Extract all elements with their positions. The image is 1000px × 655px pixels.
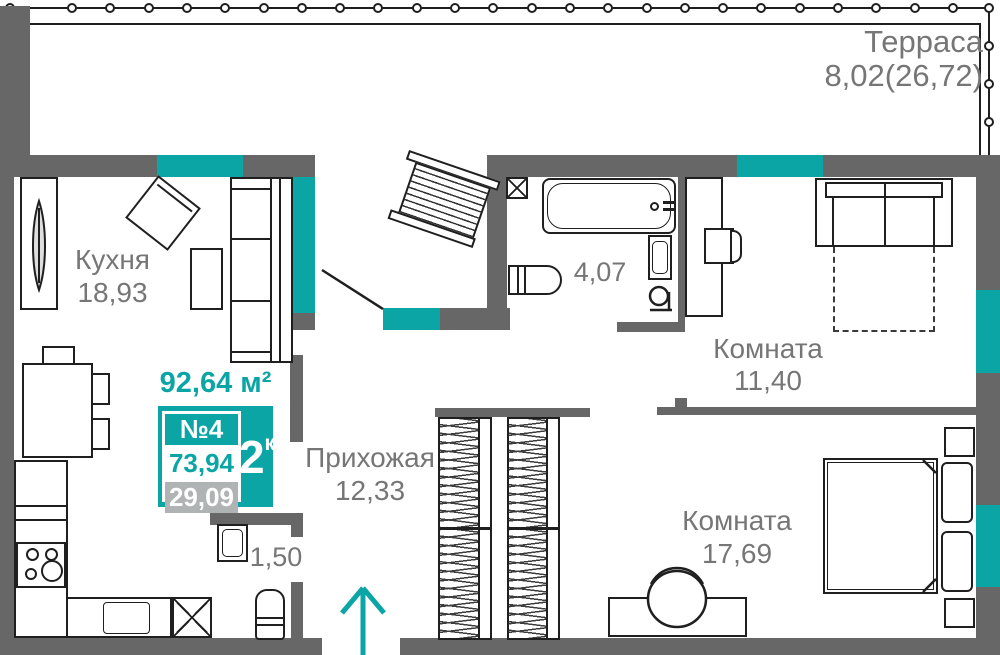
wardrobe-2 [507, 417, 560, 640]
railing-post [603, 3, 613, 13]
wall-wc-right-upper [291, 513, 303, 537]
unit-rooms-count: 2к [241, 406, 273, 507]
counter-divider-1 [16, 505, 66, 507]
railing-post [67, 3, 77, 13]
bathtub-faucet-2 [663, 208, 676, 211]
unit-card-left: №4 73,94 29,09 [162, 411, 241, 502]
bed-pillow-1 [941, 462, 973, 523]
railing-post [488, 3, 498, 13]
railing-post [565, 3, 575, 13]
entrance-arrow [342, 588, 384, 655]
total-area: 92,64 м² [150, 367, 281, 400]
kitchen-door-block [383, 308, 440, 330]
room-top-area: 11,40 [698, 366, 838, 395]
dining-table [22, 363, 93, 458]
railing-post [680, 3, 690, 13]
nightstand-1 [944, 427, 975, 457]
dining-chair-right-2 [91, 418, 110, 450]
sofa-bed-line-center [884, 184, 886, 245]
wall-bottom-left [0, 638, 322, 655]
wardrobe-1 [438, 417, 492, 640]
vent-shaft-bath [506, 177, 528, 199]
room-bottom-name: Комната [662, 506, 812, 535]
bathtub-faucet-1 [663, 201, 676, 204]
room-top-name: Комната [698, 334, 838, 363]
wc-toilet-line-2 [257, 624, 283, 626]
window-room-top [737, 155, 823, 177]
sofa-back-line-1 [270, 179, 272, 361]
unit-card: №4 73,94 29,09 2к [158, 406, 273, 507]
railing-post [412, 3, 422, 13]
coffee-table [190, 248, 223, 310]
wall-terrace-kitchen-a [14, 155, 157, 177]
sofa-bed-unfolded [833, 247, 935, 332]
kitchen-area: 18,93 [40, 278, 185, 307]
kitchen-name: Кухня [40, 245, 185, 274]
railing-post [373, 3, 383, 13]
railing-post [718, 3, 728, 13]
burner-3 [25, 568, 37, 580]
washer-line-1 [517, 267, 519, 293]
wc-toilet-line-1 [257, 617, 283, 619]
vent-shaft-kitchen [172, 597, 212, 638]
wc-area: 1,50 [240, 543, 312, 571]
counter-divider-2 [16, 519, 66, 521]
railing-post [527, 3, 537, 13]
wall-terrace-right-a [487, 155, 737, 177]
hallway-area: 12,33 [296, 476, 444, 505]
railing-post [948, 3, 958, 13]
washing-machine [508, 265, 562, 295]
railing-post [335, 3, 345, 13]
sofa-bed-line-left [832, 198, 834, 245]
railing-post [795, 3, 805, 13]
bath-sink-bowl [652, 241, 668, 274]
wall-right-a [976, 177, 1000, 290]
hallway-name: Прихожая [296, 443, 444, 472]
unit-area-secondary: 29,09 [165, 482, 238, 513]
unit-rooms-value: 2 [239, 434, 265, 480]
wc-toilet [255, 589, 285, 640]
railing-post [259, 3, 269, 13]
sofa-seat-line-1 [232, 238, 270, 240]
bed-inner [827, 462, 934, 590]
wardrobe-2-divider-h [509, 527, 558, 530]
nightstand-2 [944, 598, 975, 628]
wall-kitchen-hall [290, 355, 303, 442]
wall-bottom-right [400, 638, 1000, 655]
desk-room-bottom [608, 597, 747, 637]
railing-line-top-inner [30, 23, 981, 25]
bath-toilet-icon [650, 287, 672, 310]
wall-wardrobe-top [435, 408, 590, 417]
wall-bath-right [678, 175, 685, 332]
kitchen-door-swing [322, 270, 383, 309]
desk-chair-back [730, 230, 742, 263]
wall-rooms-divider [657, 407, 1000, 415]
sofa-armrest-bottom [232, 351, 270, 353]
wall-left-upper [0, 6, 30, 177]
wall-terrace-right-b [823, 155, 1000, 177]
railing-line-top-outer [30, 7, 989, 9]
wall-kitchen-partition-foot [293, 313, 315, 330]
bathtub-drain [650, 202, 659, 211]
wall-bath-bottom [617, 322, 685, 332]
wall-rooms-divider-stub [675, 398, 687, 409]
sofa-back-line-2 [279, 179, 281, 361]
terrace-area: 8,02(26,72) [700, 60, 983, 93]
armchair [125, 175, 201, 251]
wall-terrace-kitchen-b [243, 155, 315, 177]
burner-4 [41, 560, 63, 582]
wardrobe-1-divider-h [440, 527, 490, 530]
floor-plan: Терраса 8,02(26,72) Кухня 18,93 4,07 Ком… [0, 0, 1000, 655]
railing-post [984, 3, 994, 13]
washer-line-2 [524, 267, 526, 293]
railing-post [105, 3, 115, 13]
railing-post [756, 3, 766, 13]
railing-post [144, 3, 154, 13]
room-bottom-area: 17,69 [662, 539, 812, 568]
window-right-room-top [976, 290, 1000, 373]
railing-post [910, 3, 920, 13]
railing-post [871, 3, 881, 13]
sofa-armrest-top [232, 188, 270, 190]
sofa-seat-line-2 [232, 300, 270, 302]
unit-rooms-sup: к [265, 432, 276, 456]
railing-post [642, 3, 652, 13]
burner-1 [26, 548, 39, 561]
wall-left-lower [0, 175, 14, 655]
terrace-name: Терраса [700, 26, 983, 59]
railing-post [984, 79, 994, 89]
railing-post [984, 41, 994, 51]
wall-wc-right-lower [291, 582, 303, 640]
railing-post [450, 3, 460, 13]
window-right-room-bottom [976, 505, 1000, 587]
unit-number: №4 [165, 414, 238, 445]
railing-post [220, 3, 230, 13]
kitchen-sink [103, 602, 150, 634]
railing-post [984, 117, 994, 127]
unit-area-main: 73,94 [165, 448, 238, 479]
sofa-bed-line-right [933, 198, 935, 245]
window-kitchen [157, 155, 243, 177]
glass-partition-kitchen [293, 177, 315, 313]
sun-lounger [382, 148, 505, 262]
wall-right-b [976, 373, 1000, 505]
railing-post [833, 3, 843, 13]
kitchen-sofa [230, 177, 293, 363]
armchair-back-line [157, 184, 193, 213]
dining-chair-right-1 [91, 373, 110, 405]
railing-post [297, 3, 307, 13]
bed-pillow-2 [941, 531, 973, 592]
bathroom-area: 4,07 [560, 258, 640, 286]
railing-post [182, 3, 192, 13]
